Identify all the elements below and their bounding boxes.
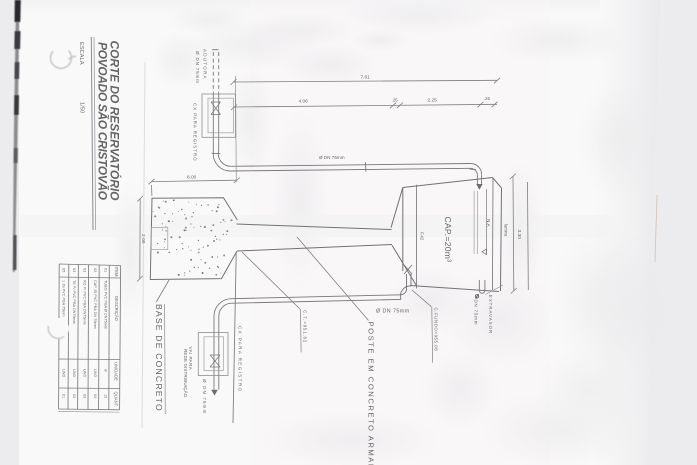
svg-text:CAP JS PVC PBA DN 75mm: CAP JS PVC PBA DN 75mm	[93, 280, 97, 329]
svg-text:04: 04	[93, 394, 97, 398]
svg-text:UNIDADE: UNIDADE	[114, 362, 119, 381]
svg-text:TE P/ PVC PBA DN75mm: TE P/ PVC PBA DN75mm	[72, 280, 76, 324]
svg-text:05: 05	[62, 268, 66, 272]
svg-text:RG P/ PVC PBA DN75mm: RG P/ PVC PBA DN75mm	[83, 280, 87, 325]
svg-text:.25: .25	[392, 98, 399, 103]
svg-text:2.00: 2.00	[140, 234, 146, 244]
svg-text:F.42: F.42	[420, 232, 425, 241]
svg-text:ITEM: ITEM	[114, 267, 119, 278]
svg-text:REDE DISTRIBUIÇÃO: REDE DISTRIBUIÇÃO	[183, 349, 189, 398]
svg-text:C.T.=951.82: C.T.=951.82	[302, 310, 307, 343]
svg-text:UND: UND	[72, 369, 76, 377]
svg-text:CX PARA REGISTRO: CX PARA REGISTRO	[193, 103, 198, 161]
svg-text:12: 12	[104, 394, 108, 398]
svg-text:Ø DN 75mm: Ø DN 75mm	[195, 51, 200, 84]
svg-text:QUANT.: QUANT.	[114, 392, 119, 407]
svg-text:Ø DN 75mm: Ø DN 75mm	[202, 379, 207, 414]
svg-text:.26: .26	[484, 96, 491, 101]
svg-text:1/50: 1/50	[79, 102, 85, 113]
svg-text:UND: UND	[93, 369, 97, 377]
svg-text:TUBO PVC PBA Ø DN75mm: TUBO PVC PBA Ø DN75mm	[104, 280, 108, 329]
svg-text:04: 04	[72, 268, 76, 272]
svg-text:N.A: N.A	[486, 219, 491, 228]
svg-text:03: 03	[83, 394, 87, 398]
svg-text:Ø DN 75mm: Ø DN 75mm	[319, 155, 345, 160]
svg-text:4.06: 4.06	[299, 99, 309, 105]
svg-text:POSTE EM CONCRETO ARMADO: POSTE EM CONCRETO ARMADO	[367, 322, 376, 465]
svg-text:CAP.=20m³: CAP.=20m³	[443, 217, 453, 263]
svg-text:Ø DN 75mm: Ø DN 75mm	[376, 309, 410, 315]
svg-text:UND: UND	[62, 369, 66, 377]
svg-text:7.61: 7.61	[361, 74, 371, 80]
svg-text:lamina: lamina	[504, 224, 509, 237]
svg-text:EXTRAVASOR: EXTRAVASOR	[488, 295, 493, 334]
svg-text:POVOADO SÃO CRISTOVÃO: POVOADO SÃO CRISTOVÃO	[96, 42, 111, 201]
svg-text:3.30: 3.30	[516, 230, 522, 240]
svg-text:UND: UND	[83, 369, 87, 377]
svg-text:01: 01	[104, 268, 108, 272]
svg-text:8.00: 8.00	[187, 174, 197, 180]
svg-text:ESCALA: ESCALA	[78, 42, 84, 65]
svg-text:BASE DE CONCRETO: BASE DE CONCRETO	[154, 304, 164, 412]
svg-text:01: 01	[62, 394, 66, 398]
svg-text:C.FUNDO=955.08: C.FUNDO=955.08	[434, 308, 439, 352]
svg-text:03: 03	[83, 268, 87, 272]
svg-text:ADUTORA: ADUTORA	[203, 49, 208, 80]
svg-text:02: 02	[72, 394, 76, 398]
svg-text:DN 75mm: DN 75mm	[473, 300, 478, 326]
svg-text:1 JS PVC PBA 75mm: 1 JS PVC PBA 75mm	[62, 280, 66, 317]
svg-text:CX PARA REGISTRO: CX PARA REGISTRO	[238, 326, 243, 392]
svg-text:02: 02	[93, 268, 97, 272]
svg-text:m: m	[104, 369, 108, 372]
svg-text:DESCRIÇÃO: DESCRIÇÃO	[114, 296, 119, 322]
svg-text:2.25: 2.25	[428, 98, 438, 104]
